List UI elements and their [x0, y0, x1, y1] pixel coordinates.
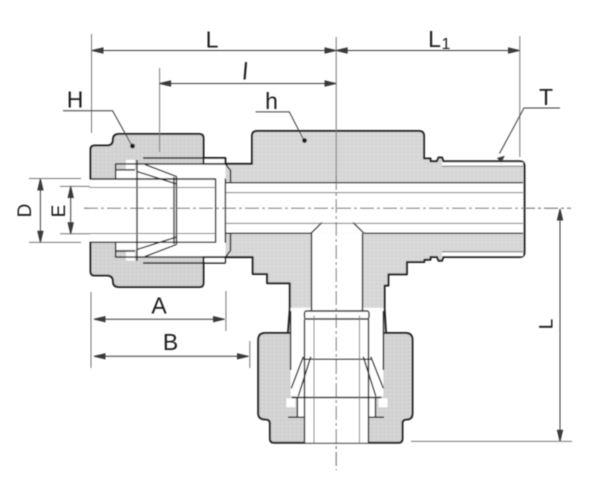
svg-text:1: 1: [442, 36, 451, 53]
svg-text:h: h: [265, 88, 278, 114]
svg-text:L: L: [428, 26, 441, 52]
svg-text:T: T: [539, 84, 553, 110]
svg-text:E: E: [49, 205, 70, 218]
svg-text:B: B: [163, 329, 178, 355]
svg-text:L: L: [206, 27, 219, 53]
svg-text:L: L: [537, 319, 558, 330]
svg-text:D: D: [15, 204, 36, 218]
svg-text:H: H: [67, 87, 84, 113]
svg-text:A: A: [151, 293, 167, 319]
